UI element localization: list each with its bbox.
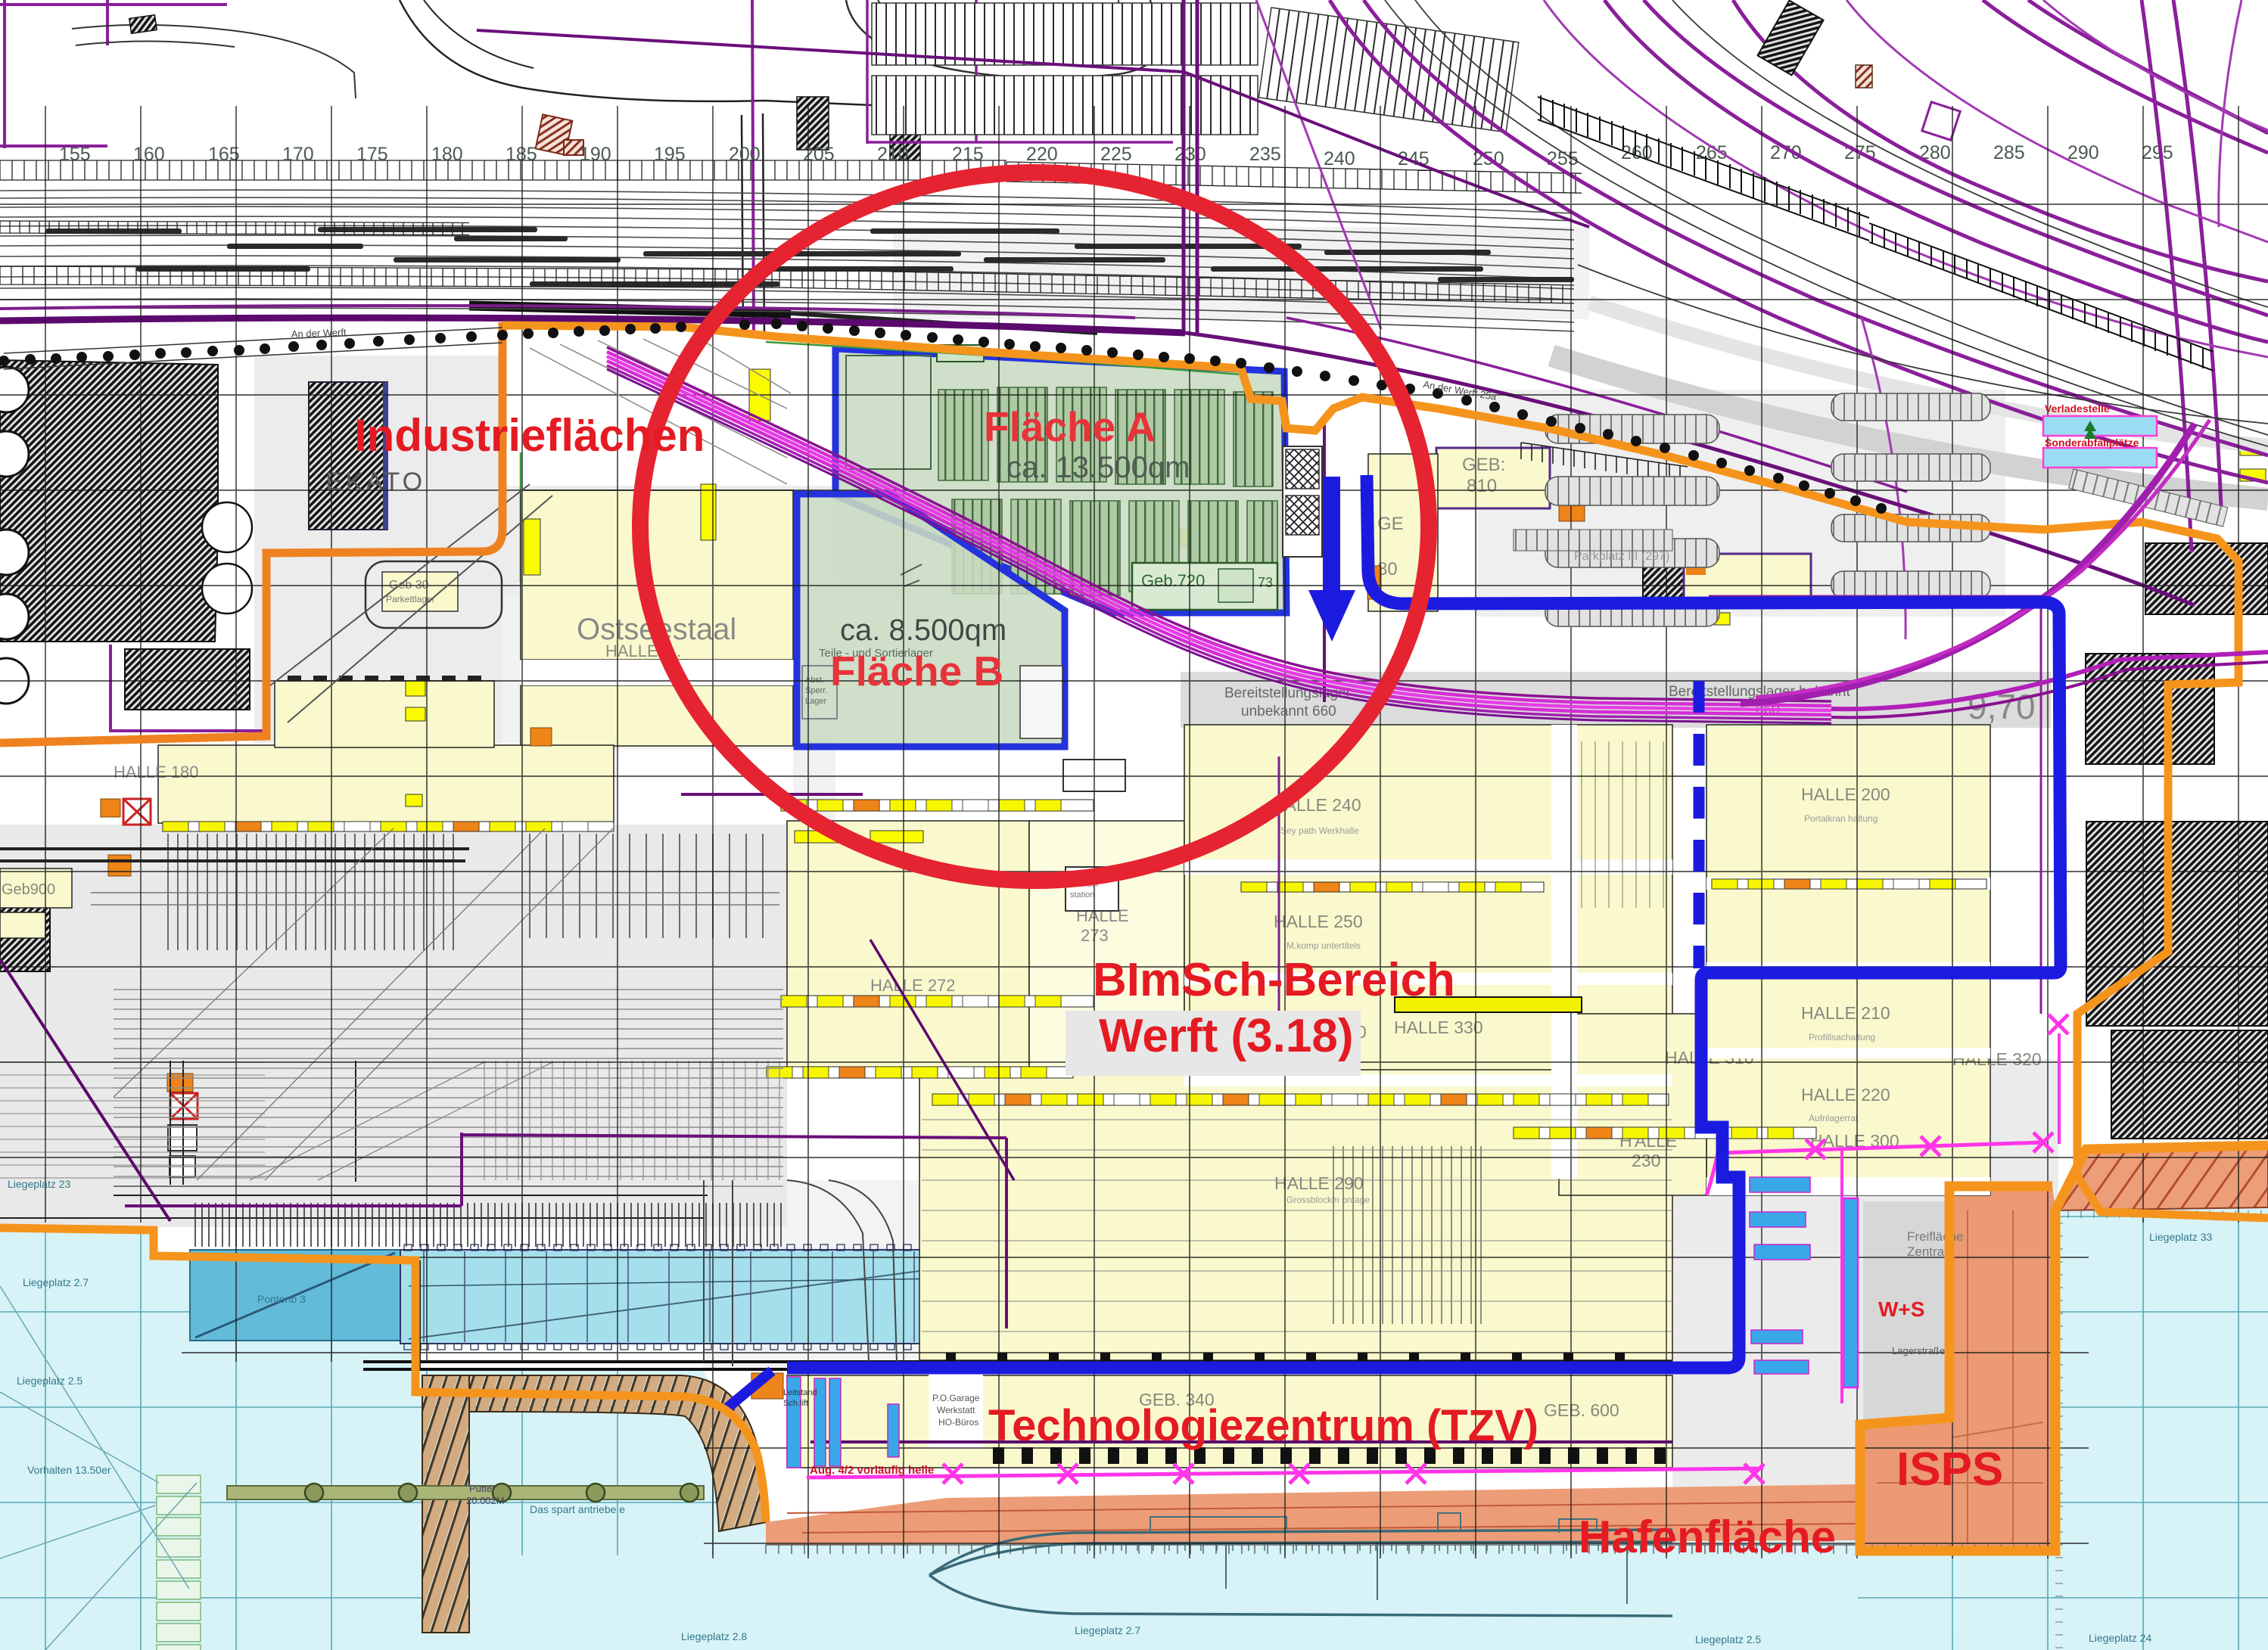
svg-text:73: 73 <box>1258 575 1273 590</box>
svg-text:Parkplatz III (297): Parkplatz III (297) <box>1574 550 1669 563</box>
svg-text:BImSch-Bereich: BImSch-Bereich <box>1093 954 1455 1006</box>
svg-text:HO-Büros: HO-Büros <box>938 1417 978 1428</box>
svg-text:W+S: W+S <box>1878 1297 1924 1321</box>
svg-text:Das spart antriebe e: Das spart antriebe e <box>530 1503 625 1515</box>
svg-text:Pütter: Pütter <box>469 1483 496 1494</box>
svg-text:285: 285 <box>1993 142 2025 163</box>
svg-text:155: 155 <box>59 144 91 165</box>
svg-text:Liegeplatz 2.7: Liegeplatz 2.7 <box>1075 1624 1140 1636</box>
svg-text:EKATO: EKATO <box>325 468 425 496</box>
svg-text:HALLE 200: HALLE 200 <box>1801 785 1890 804</box>
svg-text:Liegeplatz 2.5: Liegeplatz 2.5 <box>1695 1633 1761 1645</box>
svg-text:190: 190 <box>580 144 611 165</box>
svg-text:Aug. 4/2 vorläufig helle: Aug. 4/2 vorläufig helle <box>810 1464 934 1477</box>
svg-text:290: 290 <box>2067 142 2099 163</box>
svg-text:Technologiezentrum (TZV): Technologiezentrum (TZV) <box>988 1401 1538 1450</box>
svg-text:An der Werft: An der Werft <box>291 326 347 340</box>
svg-text:Industrieflächen: Industrieflächen <box>354 410 705 461</box>
svg-text:HALLE 210: HALLE 210 <box>1801 1003 1890 1023</box>
svg-text:Lagerstraße: Lagerstraße <box>1892 1345 1945 1356</box>
svg-text:HALLE 272: HALLE 272 <box>870 976 956 995</box>
svg-text:Sch.lift: Sch.lift <box>783 1399 808 1408</box>
svg-text:225: 225 <box>1100 144 1132 165</box>
svg-text:Sey path Werkhalle: Sey path Werkhalle <box>1280 825 1359 836</box>
svg-text:Liegeplatz 2.7: Liegeplatz 2.7 <box>23 1276 89 1288</box>
svg-text:M.komp untertitels: M.komp untertitels <box>1286 940 1361 951</box>
svg-text:Werkstatt: Werkstatt <box>937 1405 975 1415</box>
svg-text:HALLE 180: HALLE 180 <box>114 763 199 781</box>
svg-text:160: 160 <box>133 144 165 165</box>
svg-text:230: 230 <box>1174 144 1206 165</box>
svg-text:HALLE 220: HALLE 220 <box>1801 1085 1890 1105</box>
svg-text:165: 165 <box>208 144 240 165</box>
svg-text:Liegeplatz 33: Liegeplatz 33 <box>2149 1231 2213 1243</box>
svg-text:240: 240 <box>1324 148 1355 169</box>
svg-text:HALLE 250: HALLE 250 <box>1274 912 1363 931</box>
svg-text:Freifläche: Freifläche <box>1907 1229 1964 1244</box>
svg-text:Aufnlagerrat: Aufnlagerrat <box>1809 1113 1859 1123</box>
svg-text:GEB. 600: GEB. 600 <box>1544 1400 1619 1420</box>
svg-text:HALLE 330: HALLE 330 <box>1394 1018 1483 1037</box>
svg-text:GEB:: GEB: <box>1462 455 1505 475</box>
svg-text:Vorhalten 13.50er: Vorhalten 13.50er <box>27 1464 111 1476</box>
svg-text:GE: GE <box>1377 514 1404 534</box>
svg-text:230: 230 <box>1632 1151 1660 1170</box>
svg-text:ca. 8.500qm: ca. 8.500qm <box>840 614 1006 647</box>
svg-text:Pontonb 3: Pontonb 3 <box>257 1293 306 1305</box>
svg-text:180: 180 <box>431 144 463 165</box>
svg-text:Grossblockm ontage: Grossblockm ontage <box>1286 1195 1370 1205</box>
svg-text:170: 170 <box>282 144 314 165</box>
svg-text:Portalkran haltung: Portalkran haltung <box>1804 813 1878 824</box>
svg-text:175: 175 <box>356 144 388 165</box>
svg-text:unbekannt 660: unbekannt 660 <box>1241 704 1336 719</box>
svg-text:Liegeplatz 2.8: Liegeplatz 2.8 <box>681 1630 747 1642</box>
svg-text:Liegeplatz 24: Liegeplatz 24 <box>2089 1632 2152 1644</box>
svg-text:295: 295 <box>2142 142 2173 163</box>
svg-text:P.O.Garage: P.O.Garage <box>932 1393 980 1403</box>
svg-text:195: 195 <box>654 144 686 165</box>
svg-text:Werft (3.18): Werft (3.18) <box>1099 1010 1354 1062</box>
svg-text:215: 215 <box>952 144 984 165</box>
svg-text:ca. 13.500qm: ca. 13.500qm <box>1006 451 1190 484</box>
svg-text:Liegeplatz 23: Liegeplatz 23 <box>8 1178 71 1190</box>
svg-text:Profillsachaltung: Profillsachaltung <box>1809 1032 1875 1043</box>
svg-text:Liegeplatz 2.5: Liegeplatz 2.5 <box>17 1375 82 1387</box>
svg-text:220: 220 <box>1026 144 1058 165</box>
svg-text:Geb900: Geb900 <box>2 881 55 898</box>
svg-text:ISPS: ISPS <box>1896 1443 2003 1496</box>
svg-text:station: station <box>1070 890 1094 900</box>
svg-text:Fläche B: Fläche B <box>830 648 1003 694</box>
svg-text:Verladestelle: Verladestelle <box>2045 402 2110 415</box>
svg-text:235: 235 <box>1249 144 1281 165</box>
svg-text:Leitstand: Leitstand <box>783 1388 817 1397</box>
svg-text:HALLE 290: HALLE 290 <box>1274 1173 1364 1193</box>
svg-text:185: 185 <box>506 144 537 165</box>
svg-text:200: 200 <box>729 144 761 165</box>
svg-text:Hafenfläche: Hafenfläche <box>1579 1512 1836 1562</box>
svg-text:20.002M: 20.002M <box>466 1495 505 1506</box>
svg-text:Fläche A: Fläche A <box>984 403 1156 450</box>
svg-text:810: 810 <box>1467 476 1497 496</box>
svg-text:Geb.720: Geb.720 <box>1141 571 1205 590</box>
